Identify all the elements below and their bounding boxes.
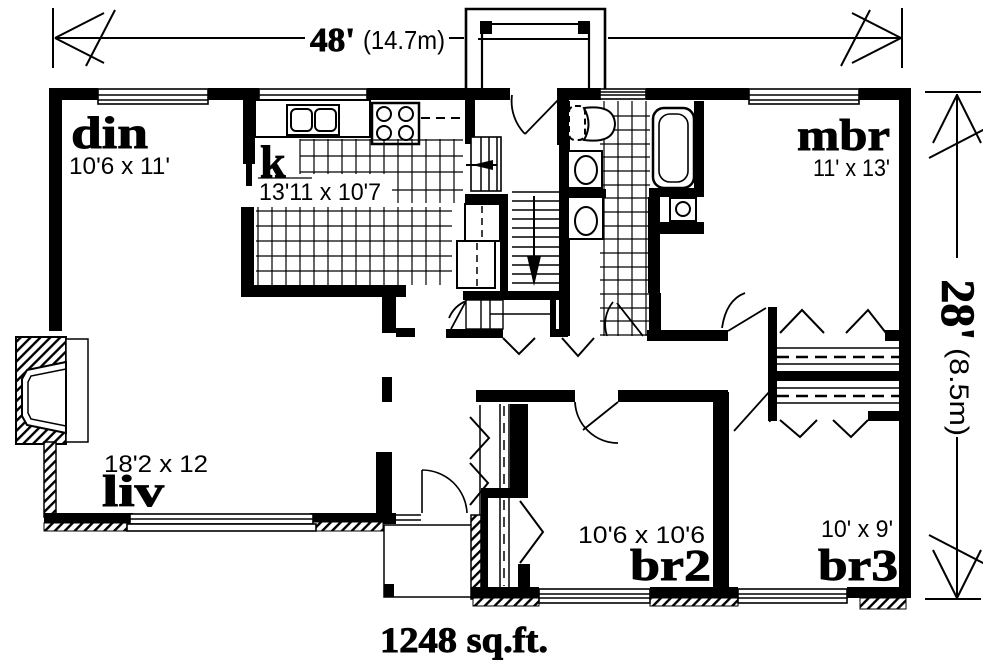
svg-text:13'11 x 10'7: 13'11 x 10'7 bbox=[259, 179, 381, 206]
svg-text:(14.7m): (14.7m) bbox=[363, 25, 445, 55]
svg-text:10'6 x 11': 10'6 x 11' bbox=[69, 153, 170, 180]
svg-text:1248 sq.ft.: 1248 sq.ft. bbox=[380, 620, 548, 660]
svg-text:br2: br2 bbox=[630, 541, 711, 590]
svg-text:din: din bbox=[71, 107, 148, 158]
svg-text:liv: liv bbox=[102, 467, 164, 516]
svg-text:mbr: mbr bbox=[797, 111, 890, 160]
svg-text:11' x 13': 11' x 13' bbox=[813, 155, 890, 182]
svg-text:10' x 9': 10' x 9' bbox=[821, 516, 893, 543]
svg-text:48': 48' bbox=[310, 22, 355, 59]
svg-text:(8.5m): (8.5m) bbox=[944, 348, 974, 436]
svg-text:br3: br3 bbox=[818, 541, 898, 590]
svg-text:28': 28' bbox=[931, 280, 983, 341]
